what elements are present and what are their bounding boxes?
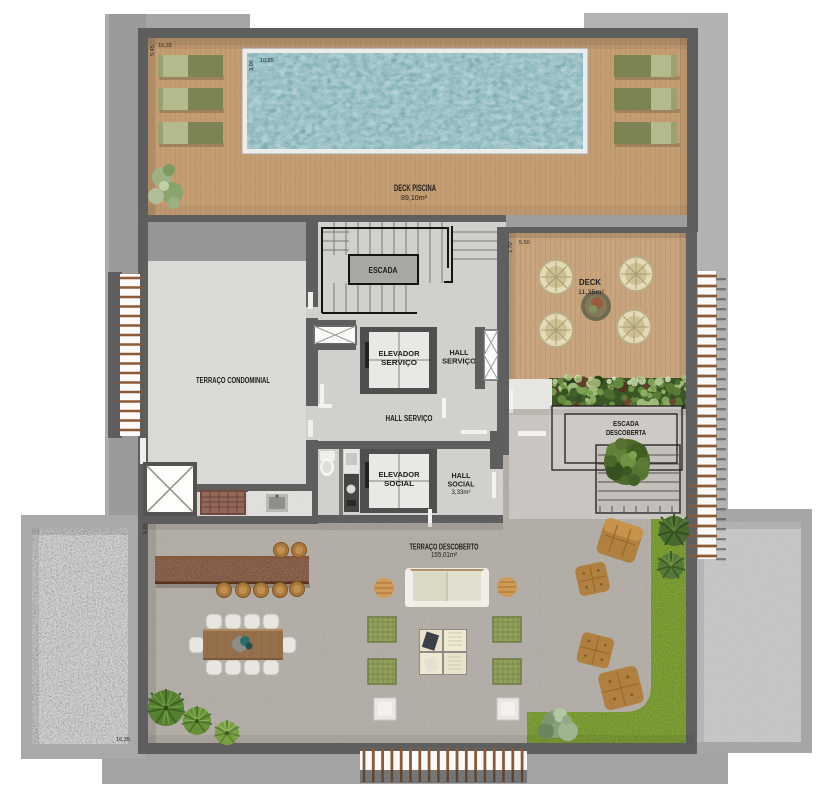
svg-text:1,70: 1,70	[508, 242, 514, 253]
svg-text:155,01m²: 155,01m²	[431, 552, 458, 559]
svg-text:16,35: 16,35	[158, 43, 172, 49]
svg-text:SOCIAL: SOCIAL	[448, 482, 476, 489]
svg-text:DECK PISCINA: DECK PISCINA	[394, 183, 436, 193]
svg-text:5,50: 5,50	[519, 240, 530, 246]
svg-text:HALL: HALL	[452, 473, 472, 480]
svg-text:ESCADA: ESCADA	[613, 419, 639, 428]
svg-text:5,45: 5,45	[150, 45, 156, 56]
svg-text:ELEVADOR: ELEVADOR	[379, 349, 421, 358]
svg-text:DESCOBERTA: DESCOBERTA	[606, 428, 646, 437]
svg-text:16,35: 16,35	[116, 737, 130, 743]
svg-text:HALL SERVIÇO: HALL SERVIÇO	[386, 414, 433, 423]
svg-text:3,00: 3,00	[249, 60, 255, 71]
svg-text:11,35m²: 11,35m²	[578, 289, 605, 296]
svg-text:HALL: HALL	[450, 350, 470, 357]
svg-text:89,10m²: 89,10m²	[401, 195, 428, 202]
svg-text:3,33m²: 3,33m²	[452, 490, 471, 496]
svg-text:ELEVADOR: ELEVADOR	[379, 470, 421, 479]
svg-text:ESCADA: ESCADA	[369, 266, 398, 275]
svg-text:TERRAÇO CONDOMINIAL: TERRAÇO CONDOMINIAL	[196, 376, 270, 385]
svg-text:SOCIAL: SOCIAL	[384, 479, 414, 488]
svg-text:TERRAÇO DESCOBERTO: TERRAÇO DESCOBERTO	[410, 543, 479, 552]
svg-text:SERVIÇO: SERVIÇO	[442, 359, 477, 366]
svg-text:10,85: 10,85	[260, 58, 274, 64]
svg-text:SERVIÇO: SERVIÇO	[381, 358, 417, 367]
svg-text:DECK: DECK	[579, 278, 601, 287]
